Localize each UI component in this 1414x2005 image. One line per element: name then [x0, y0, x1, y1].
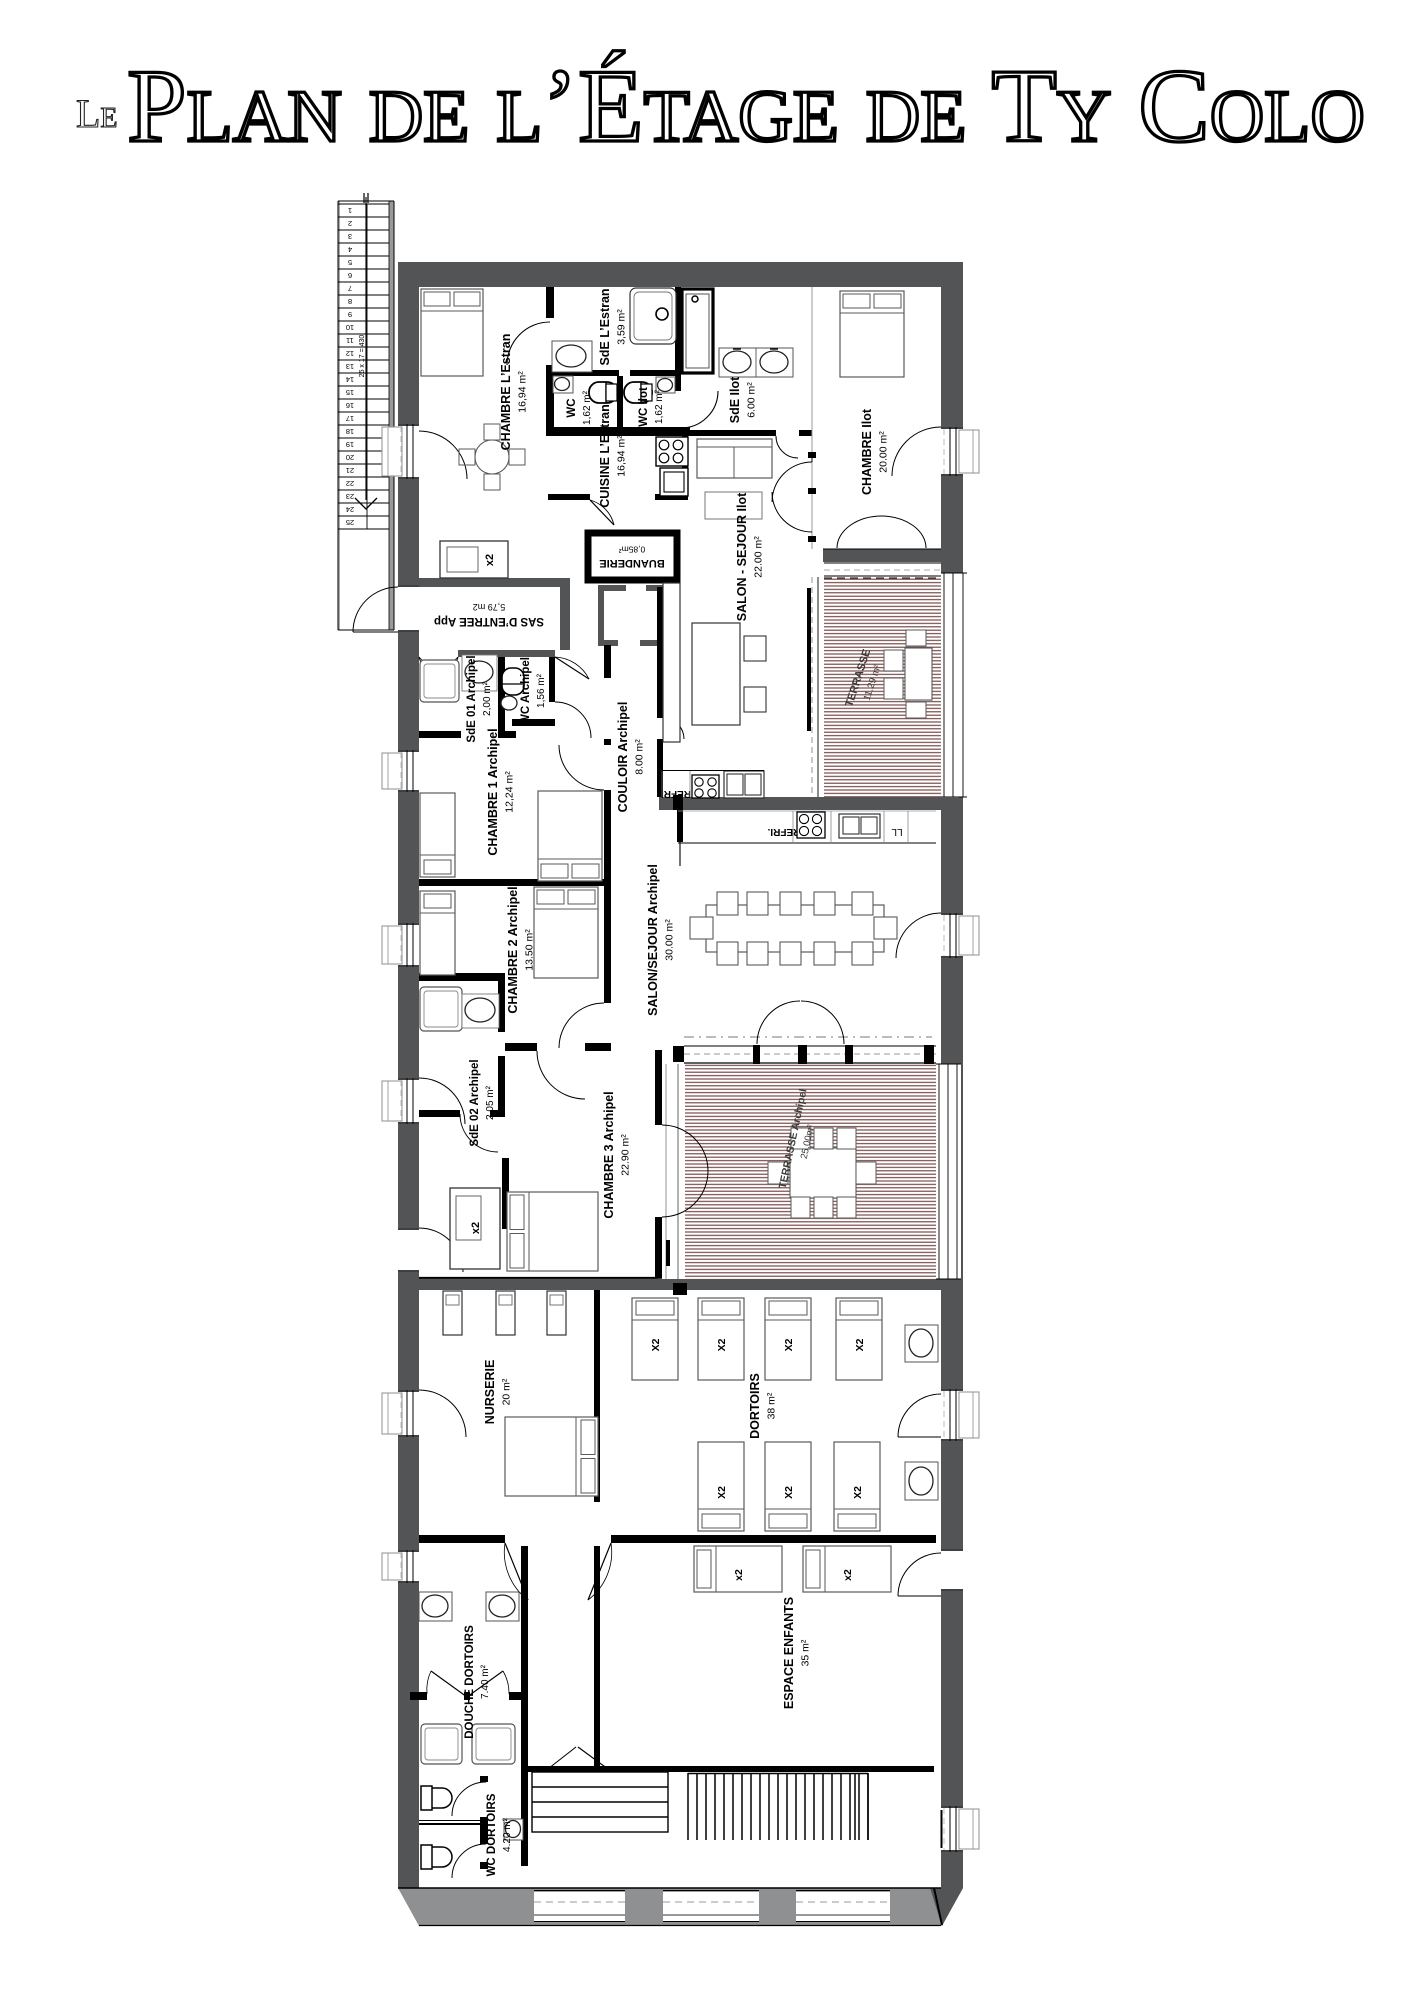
- svg-text:REFRI: REFRI: [661, 788, 691, 799]
- svg-text:30.00 m²: 30.00 m²: [664, 919, 676, 961]
- svg-text:CHAMBRE L’Estran: CHAMBRE L’Estran: [499, 334, 513, 451]
- svg-text:5: 5: [348, 258, 352, 267]
- svg-text:12: 12: [346, 349, 354, 358]
- svg-text:WC DORTOIRS: WC DORTOIRS: [486, 1793, 498, 1876]
- svg-text:SdE L’Estran: SdE L’Estran: [598, 288, 612, 365]
- svg-text:22.00 m²: 22.00 m²: [753, 536, 765, 578]
- svg-text:DORTOIRS: DORTOIRS: [748, 1373, 762, 1439]
- svg-text:2,00 m²: 2,00 m²: [482, 681, 493, 716]
- svg-text:0,85m²: 0,85m²: [619, 545, 646, 555]
- svg-text:21: 21: [346, 466, 354, 475]
- svg-text:18: 18: [346, 427, 354, 436]
- svg-text:7: 7: [348, 284, 352, 293]
- svg-text:WC: WC: [566, 398, 578, 417]
- svg-text:X2: X2: [716, 1338, 728, 1351]
- svg-text:4.20 m²: 4.20 m²: [502, 1817, 513, 1852]
- svg-text:SALON/SEJOUR Archipel: SALON/SEJOUR Archipel: [646, 864, 660, 1016]
- svg-text:CHAMBRE 3 Archipel: CHAMBRE 3 Archipel: [602, 1091, 616, 1218]
- svg-text:BUANDERIE: BUANDERIE: [599, 557, 664, 569]
- svg-text:CUISINE L’Estran: CUISINE L’Estran: [598, 404, 612, 508]
- svg-text:7.40 m²: 7.40 m²: [480, 1664, 491, 1699]
- svg-text:11: 11: [346, 336, 354, 345]
- svg-text:22: 22: [346, 479, 354, 488]
- svg-text:16,94 m²: 16,94 m²: [616, 435, 628, 477]
- svg-text:6: 6: [348, 271, 352, 280]
- svg-text:SdE 01 Archipel: SdE 01 Archipel: [466, 655, 478, 742]
- svg-text:WC Ilot: WC Ilot: [638, 387, 650, 427]
- svg-text:2: 2: [348, 219, 352, 228]
- svg-text:1,62 m²: 1,62 m²: [582, 390, 593, 425]
- svg-text:13.50 m²: 13.50 m²: [524, 929, 536, 971]
- svg-text:22.90 m²: 22.90 m²: [620, 1134, 632, 1176]
- svg-text:x2: x2: [484, 554, 496, 566]
- svg-text:X2: X2: [852, 1486, 864, 1499]
- svg-text:3: 3: [348, 232, 352, 241]
- svg-text:X2: X2: [716, 1486, 728, 1499]
- svg-text:9: 9: [348, 310, 352, 319]
- svg-text:NURSERIE: NURSERIE: [483, 1360, 497, 1425]
- svg-text:CHAMBRE 1 Archipel: CHAMBRE 1 Archipel: [486, 728, 500, 855]
- svg-text:38 m²: 38 m²: [766, 1392, 778, 1419]
- svg-text:3,59 m²: 3,59 m²: [616, 309, 628, 345]
- svg-text:10: 10: [346, 323, 354, 332]
- svg-text:19: 19: [346, 440, 354, 449]
- svg-text:16: 16: [346, 401, 354, 410]
- svg-text:20.00 m²: 20.00 m²: [878, 431, 890, 473]
- svg-text:1,56 m²: 1,56 m²: [536, 673, 547, 708]
- svg-text:2,05 m²: 2,05 m²: [485, 1085, 496, 1120]
- svg-text:Plan de l’Étage de Ty Colo: Plan de l’Étage de Ty Colo: [127, 47, 1365, 164]
- svg-text:DOUCHE DORTOIRS: DOUCHE DORTOIRS: [464, 1625, 476, 1739]
- svg-text:4: 4: [348, 245, 352, 254]
- svg-text:35 m²: 35 m²: [800, 1639, 812, 1666]
- svg-text:14: 14: [346, 375, 354, 384]
- svg-text:x2: x2: [842, 1569, 854, 1581]
- svg-text:WC Archipel: WC Archipel: [520, 657, 532, 725]
- svg-text:SAS D’ENTREE App: SAS D’ENTREE App: [434, 615, 544, 627]
- svg-text:CHAMBRE Ilot: CHAMBRE Ilot: [860, 408, 874, 495]
- svg-text:SdE Ilot: SdE Ilot: [728, 376, 742, 423]
- svg-text:REFRI.: REFRI.: [767, 826, 800, 837]
- svg-text:23: 23: [346, 492, 354, 501]
- svg-text:Le: Le: [76, 91, 118, 136]
- svg-text:X2: X2: [650, 1338, 662, 1351]
- svg-text:X2: X2: [854, 1338, 866, 1351]
- svg-text:20 m²: 20 m²: [501, 1378, 513, 1405]
- svg-text:1: 1: [348, 206, 352, 215]
- svg-text:25: 25: [346, 518, 354, 527]
- svg-text:COULOIR Archipel: COULOIR Archipel: [616, 702, 630, 813]
- svg-text:13: 13: [346, 362, 354, 371]
- svg-text:20: 20: [346, 453, 354, 462]
- svg-text:6.00 m²: 6.00 m²: [746, 382, 758, 418]
- svg-text:15: 15: [346, 388, 354, 397]
- svg-text:x2: x2: [733, 1569, 745, 1581]
- svg-text:12,24 m²: 12,24 m²: [504, 771, 516, 813]
- svg-text:1,62 m²: 1,62 m²: [654, 389, 665, 424]
- svg-text:8.00 m²: 8.00 m²: [634, 739, 646, 775]
- svg-text:8: 8: [348, 297, 352, 306]
- svg-text:SALON - SEJOUR Ilot: SALON - SEJOUR Ilot: [735, 492, 749, 621]
- svg-text:ESPACE ENFANTS: ESPACE ENFANTS: [782, 1597, 796, 1709]
- svg-text:25 x 17 = 430: 25 x 17 = 430: [359, 335, 366, 378]
- svg-text:17: 17: [346, 414, 354, 423]
- svg-text:SdE 02 Archipel: SdE 02 Archipel: [469, 1059, 481, 1146]
- svg-text:5,79 m2: 5,79 m2: [473, 602, 506, 612]
- svg-text:CHAMBRE 2 Archipel: CHAMBRE 2 Archipel: [506, 886, 520, 1013]
- svg-text:24: 24: [346, 505, 354, 514]
- svg-text:X2: X2: [783, 1486, 795, 1499]
- svg-text:LL: LL: [891, 826, 903, 837]
- svg-text:X2: X2: [783, 1338, 795, 1351]
- svg-text:16,94 m²: 16,94 m²: [517, 371, 529, 413]
- svg-text:x2: x2: [470, 1222, 482, 1234]
